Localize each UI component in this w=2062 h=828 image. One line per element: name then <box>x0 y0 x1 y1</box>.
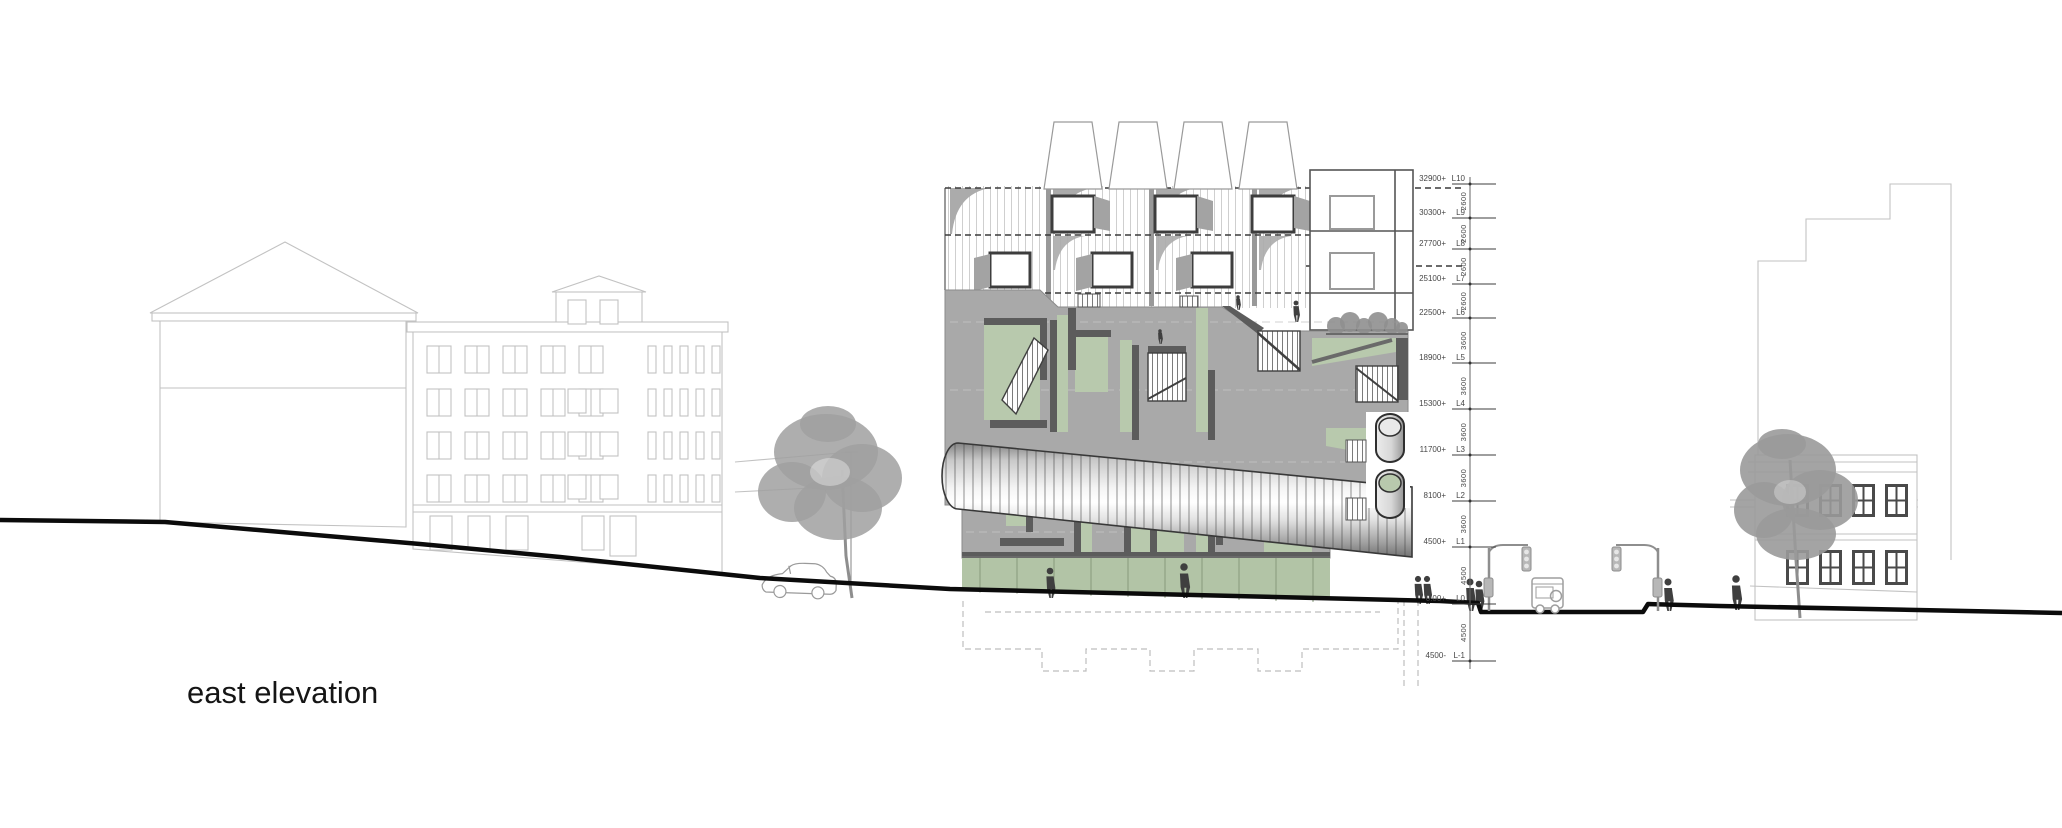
dimension-label: 3600 <box>1459 469 1468 488</box>
light-well-towers <box>1044 122 1297 189</box>
svg-text:L10: L10 <box>1452 174 1466 183</box>
svg-text:22500+: 22500+ <box>1419 308 1446 317</box>
svg-text:32900+: 32900+ <box>1419 174 1446 183</box>
level-mark: 15300+L4 <box>1419 399 1496 411</box>
level-mark: 8100+L2 <box>1424 491 1496 503</box>
level-mark: 4500-L-1 <box>1426 651 1496 663</box>
main-building <box>928 122 1742 611</box>
svg-text:30300+: 30300+ <box>1419 208 1446 217</box>
svg-text:11700+: 11700+ <box>1420 445 1447 454</box>
svg-text:8100+: 8100+ <box>1424 491 1447 500</box>
svg-text:18900+: 18900+ <box>1419 353 1446 362</box>
street-tree-left <box>758 406 902 598</box>
svg-text:L2: L2 <box>1456 491 1465 500</box>
level-mark: 27700+L8 <box>1419 239 1496 251</box>
dimension-label: 3600 <box>1459 331 1468 350</box>
level-mark: 22500+L6 <box>1419 308 1496 320</box>
svg-text:0.00+: 0.00+ <box>1426 594 1447 603</box>
svg-text:L4: L4 <box>1456 399 1465 408</box>
level-mark: 4500+L1 <box>1424 537 1496 549</box>
foundation-dashed-outline <box>963 600 1418 688</box>
dimension-label: 4500 <box>1459 623 1468 642</box>
traffic-light-left <box>1484 545 1531 611</box>
drawing-title: east elevation <box>187 675 378 710</box>
svg-text:4500+: 4500+ <box>1424 537 1447 546</box>
svg-text:15300+: 15300+ <box>1419 399 1446 408</box>
level-mark: 11700+L3 <box>1420 445 1496 457</box>
svg-text:L-1: L-1 <box>1453 651 1465 660</box>
dimension-label: 4500 <box>1459 566 1468 585</box>
svg-text:25100+: 25100+ <box>1419 274 1446 283</box>
svg-text:4500-: 4500- <box>1426 651 1447 660</box>
roof-frame <box>1310 170 1413 330</box>
svg-text:L6: L6 <box>1456 308 1465 317</box>
level-mark: 32900+L10 <box>1419 174 1496 186</box>
svg-text:L1: L1 <box>1456 537 1465 546</box>
svg-text:27700+: 27700+ <box>1419 239 1446 248</box>
traffic-light-right <box>1612 545 1662 611</box>
tower-roof <box>552 276 646 292</box>
svg-text:L0: L0 <box>1456 594 1465 603</box>
svg-text:L9: L9 <box>1456 208 1465 217</box>
svg-text:L7: L7 <box>1456 274 1465 283</box>
level-mark: 18900+L5 <box>1419 353 1496 365</box>
bus <box>1532 578 1563 613</box>
level-mark: 25100+L7 <box>1419 274 1496 286</box>
dimension-label: 3600 <box>1459 423 1468 442</box>
svg-text:L3: L3 <box>1456 445 1465 454</box>
svg-text:L8: L8 <box>1456 239 1465 248</box>
east-elevation-drawing: 32900+L10260030300+L9260027700+L82600251… <box>0 0 2062 828</box>
svg-text:L5: L5 <box>1456 353 1465 362</box>
hip-roof-building-outline <box>150 242 418 527</box>
dimension-label: 3600 <box>1459 515 1468 534</box>
level-mark: 30300+L9 <box>1419 208 1496 220</box>
dimension-label: 3600 <box>1459 377 1468 396</box>
